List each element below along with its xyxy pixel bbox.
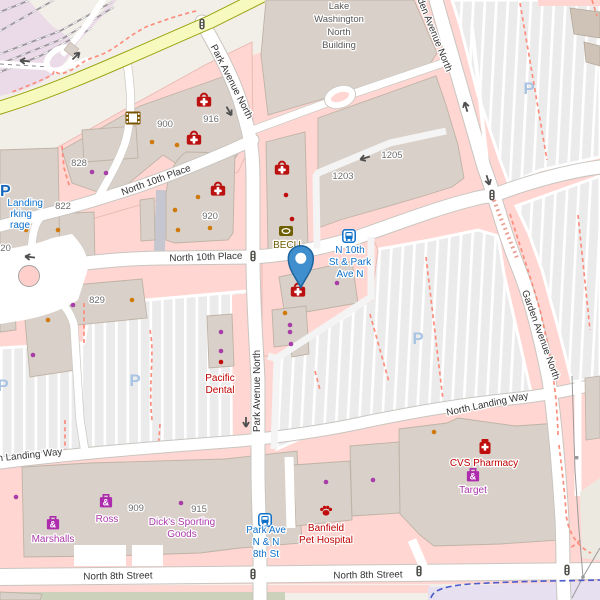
svg-text:Target: Target [459,485,487,496]
svg-text:1205: 1205 [381,150,402,161]
svg-text:Marshalls: Marshalls [32,534,75,545]
svg-text:P: P [129,371,140,390]
svg-text:1203: 1203 [332,171,353,182]
svg-text:Banfield: Banfield [308,523,344,534]
svg-text:909: 909 [128,503,144,514]
svg-text:Washington: Washington [314,14,364,25]
svg-text:916: 916 [203,114,219,125]
svg-text:Park Avenue North: Park Avenue North [252,350,263,432]
svg-text:828: 828 [71,158,87,169]
svg-text:P: P [412,329,423,348]
svg-text:8th St: 8th St [253,549,279,560]
svg-text:P: P [0,183,11,200]
svg-text:P: P [523,79,534,98]
svg-text:Building: Building [322,40,356,51]
svg-text:822: 822 [55,201,71,212]
svg-text:North: North [327,27,350,38]
svg-text:rage: rage [10,220,30,231]
svg-text:Park Ave: Park Ave [246,525,286,536]
svg-text:Pet Hospital: Pet Hospital [299,535,353,546]
svg-text:829: 829 [89,295,105,306]
svg-text:rking: rking [10,209,32,220]
svg-text:920: 920 [0,243,11,254]
svg-text:N & N: N & N [253,537,280,548]
svg-text:N 10th: N 10th [335,245,364,256]
svg-text:Dental: Dental [206,385,235,396]
svg-text:Landing: Landing [7,198,43,209]
svg-text:North 8th Street: North 8th Street [333,569,403,581]
svg-text:Lake: Lake [329,1,350,12]
svg-text:915: 915 [191,504,207,515]
svg-text:Ross: Ross [96,514,119,525]
svg-text:Ave N: Ave N [336,269,363,280]
svg-text:Goods: Goods [167,529,196,540]
svg-text:Pacific: Pacific [205,373,234,384]
svg-text:St & Park: St & Park [329,257,372,268]
svg-text:CVS Pharmacy: CVS Pharmacy [450,458,518,469]
svg-text:P: P [0,376,9,395]
svg-text:900: 900 [157,119,173,130]
svg-text:North 8th Street: North 8th Street [83,570,153,582]
svg-text:920: 920 [202,211,218,222]
svg-text:Dick's Sporting: Dick's Sporting [149,517,215,528]
